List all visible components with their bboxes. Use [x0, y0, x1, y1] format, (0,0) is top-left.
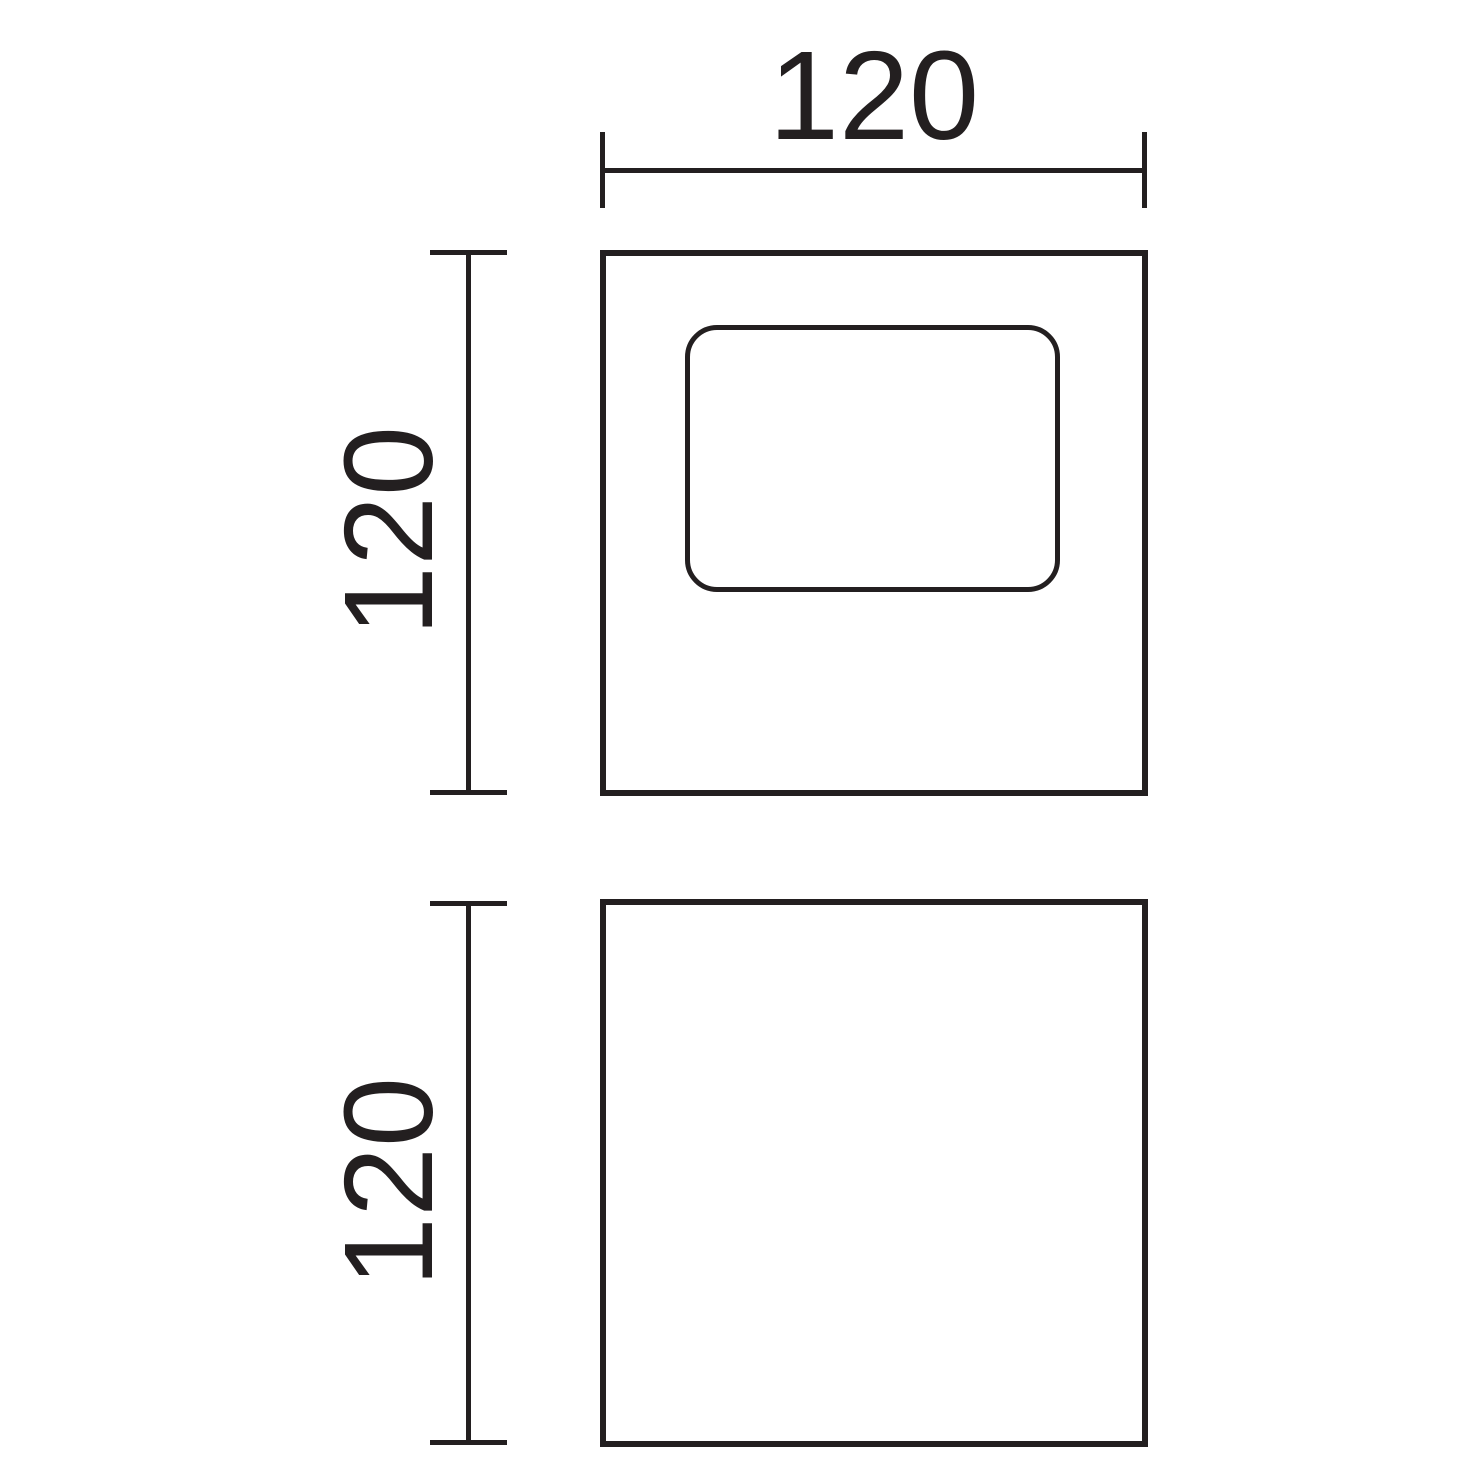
- dimension-tick-top-left: [600, 132, 605, 208]
- dimension-label-side-height: 120: [326, 1032, 452, 1332]
- drawing-canvas: 120 120 120: [0, 0, 1476, 1476]
- dimension-line-top-width: [603, 168, 1145, 173]
- dimension-line-front-height: [466, 253, 471, 793]
- dimension-tick-front-top: [430, 250, 507, 255]
- dimension-tick-side-top: [430, 901, 507, 906]
- dimension-line-side-height: [466, 904, 471, 1443]
- dimension-tick-front-bottom: [430, 790, 507, 795]
- side-view-outline: [600, 899, 1148, 1447]
- dimension-label-top-width: 120: [724, 33, 1024, 159]
- dimension-tick-top-right: [1142, 132, 1147, 208]
- front-view-window: [685, 325, 1060, 592]
- dimension-label-front-height: 120: [326, 381, 452, 681]
- dimension-tick-side-bottom: [430, 1440, 507, 1445]
